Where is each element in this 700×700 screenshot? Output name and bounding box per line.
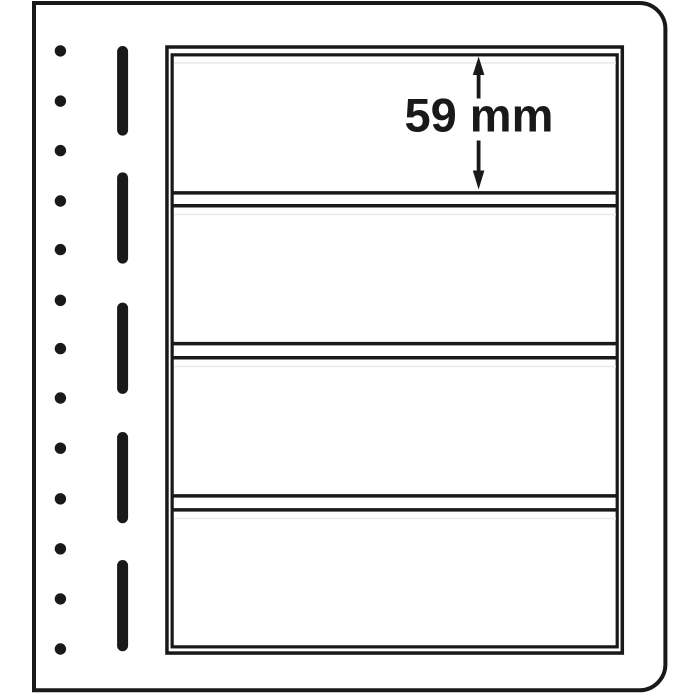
svg-text:59 mm: 59 mm (404, 89, 553, 142)
